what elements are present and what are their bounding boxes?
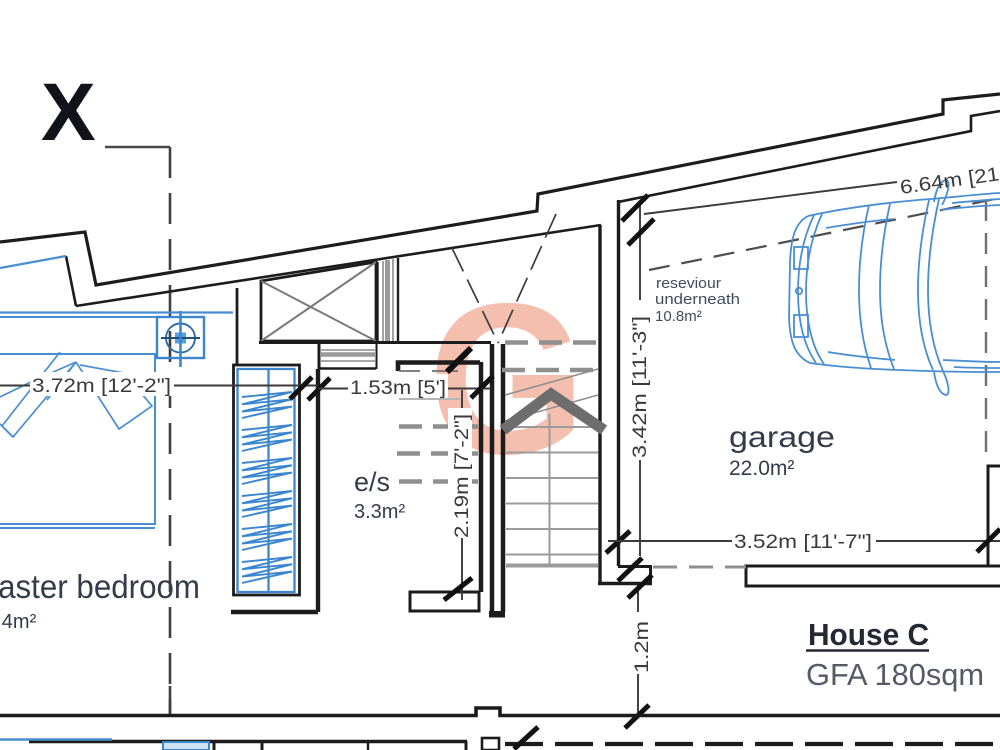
svg-text:1.53m [5']: 1.53m [5'] bbox=[350, 377, 446, 399]
svg-text:15.4m²: 15.4m² bbox=[0, 611, 37, 633]
svg-text:House C: House C bbox=[808, 617, 929, 652]
svg-text:22.0m²: 22.0m² bbox=[729, 457, 794, 480]
svg-text:X: X bbox=[41, 67, 96, 158]
svg-text:3.3m²: 3.3m² bbox=[354, 501, 405, 523]
svg-text:1.2m: 1.2m bbox=[631, 621, 653, 673]
svg-text:10.8m²: 10.8m² bbox=[655, 308, 702, 325]
svg-text:3.52m [11'-7"]: 3.52m [11'-7"] bbox=[734, 531, 872, 553]
svg-text:master bedroom: master bedroom bbox=[0, 568, 200, 605]
svg-text:underneath: underneath bbox=[655, 291, 740, 308]
svg-text:2.19m [7'-2"]: 2.19m [7'-2"] bbox=[451, 414, 473, 538]
svg-text:garage: garage bbox=[729, 421, 835, 454]
svg-text:3.42m [11'-3"]: 3.42m [11'-3"] bbox=[629, 316, 651, 458]
svg-text:reseviour: reseviour bbox=[656, 275, 721, 292]
svg-text:3.72m [12'-2"]: 3.72m [12'-2"] bbox=[32, 375, 171, 397]
svg-text:e/s: e/s bbox=[354, 467, 390, 497]
svg-text:GFA 180sqm: GFA 180sqm bbox=[806, 657, 984, 692]
